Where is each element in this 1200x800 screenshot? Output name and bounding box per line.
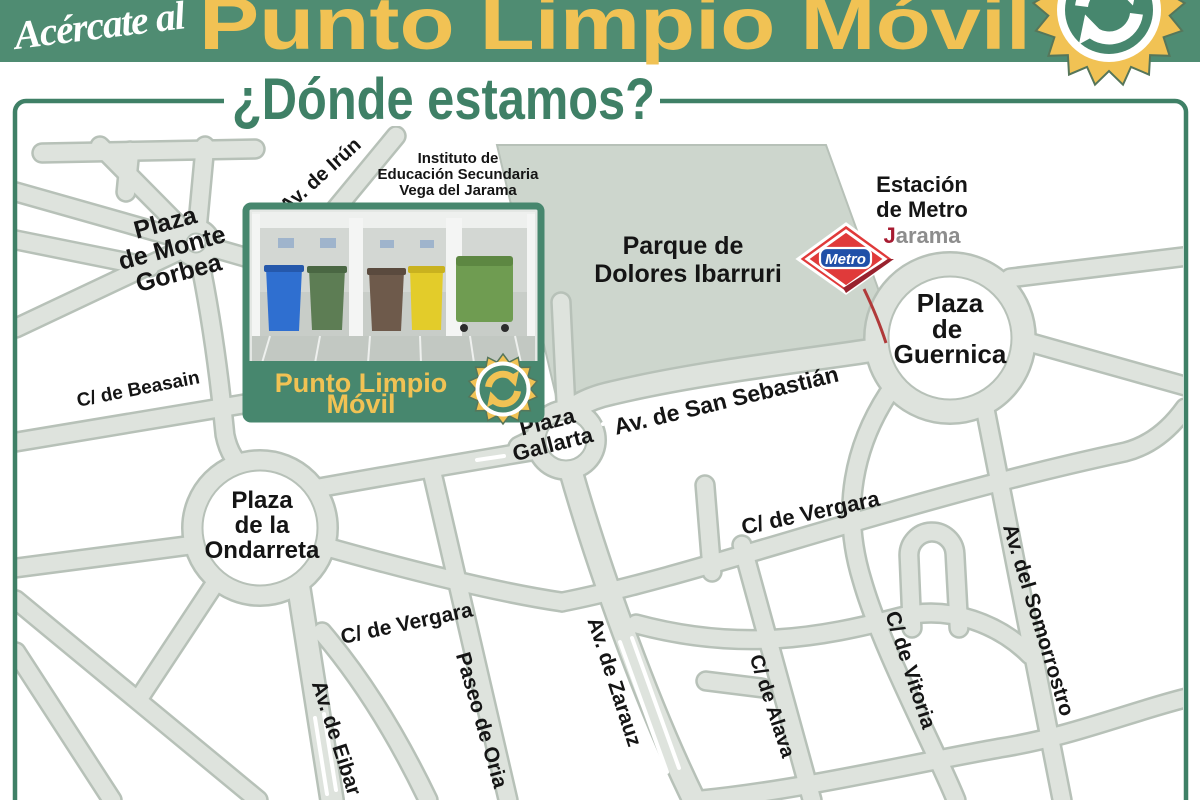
svg-text:Vega del Jarama: Vega del Jarama	[399, 182, 517, 199]
svg-text:Plaza: Plaza	[231, 487, 293, 514]
svg-text:Instituto de: Instituto de	[418, 150, 499, 167]
svg-text:¿Dónde estamos?: ¿Dónde estamos?	[232, 67, 655, 132]
svg-text:Guernica: Guernica	[894, 339, 1007, 369]
svg-text:de la: de la	[235, 512, 290, 539]
svg-text:Parque de: Parque de	[623, 232, 744, 260]
svg-text:Educación Secundaria: Educación Secundaria	[378, 166, 540, 183]
svg-text:Jarama: Jarama	[883, 223, 961, 248]
svg-text:Estación: Estación	[876, 172, 968, 197]
svg-text:Ondarreta: Ondarreta	[205, 537, 320, 564]
svg-text:Punto Limpio Móvil: Punto Limpio Móvil	[199, 0, 1031, 65]
svg-text:Móvil: Móvil	[326, 389, 395, 419]
svg-text:Dolores Ibarruri: Dolores Ibarruri	[594, 260, 782, 288]
svg-text:Metro: Metro	[825, 251, 866, 268]
svg-text:de Metro: de Metro	[876, 197, 968, 222]
